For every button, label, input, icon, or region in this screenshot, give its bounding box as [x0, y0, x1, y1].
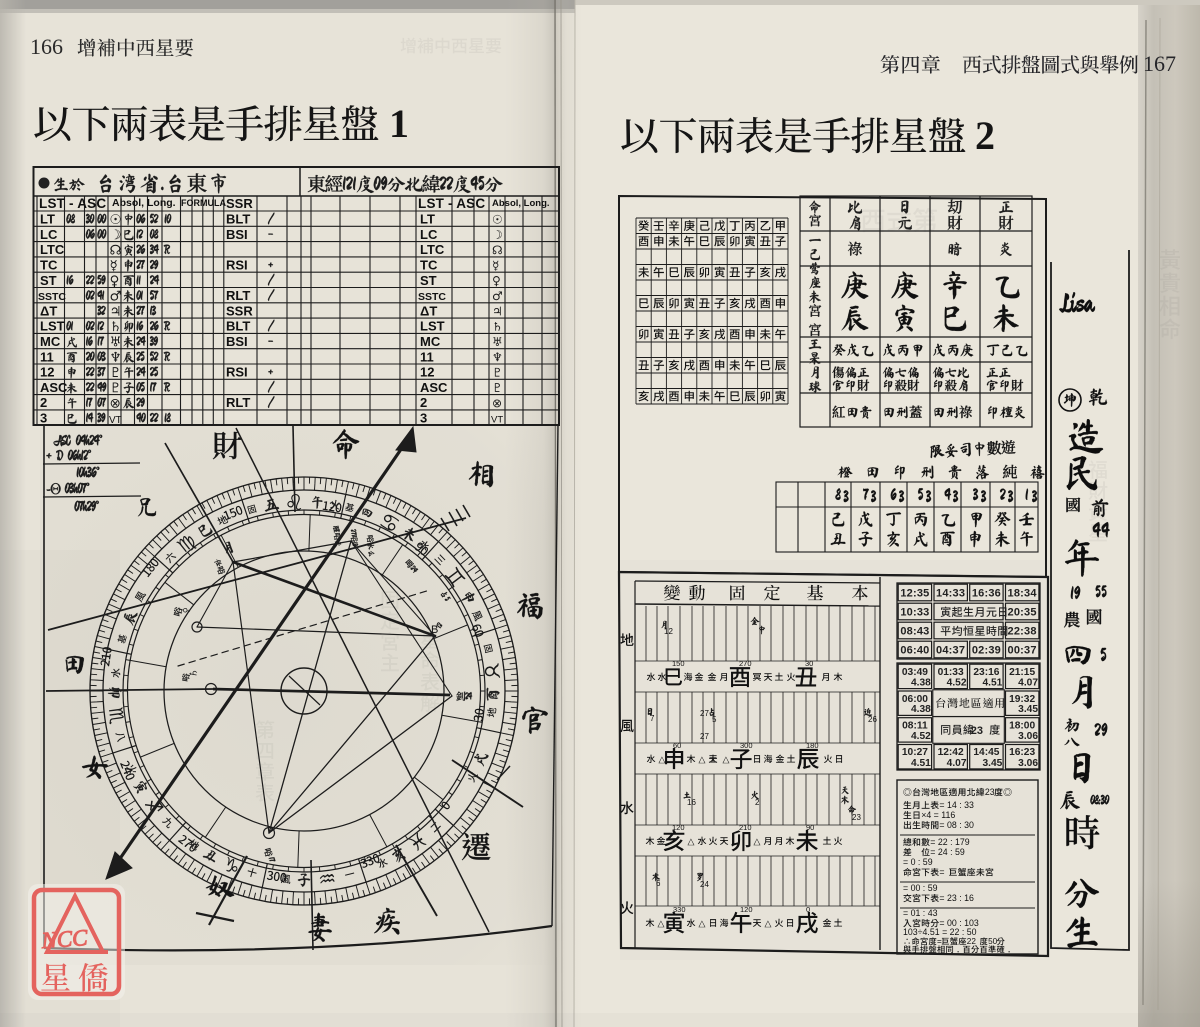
svg-text:LT: LT [420, 212, 435, 227]
svg-text:4.07: 4.07 [1018, 678, 1038, 689]
svg-text:10:33: 10:33 [900, 606, 929, 618]
svg-text:= 01 : 43: = 01 : 43 [903, 908, 938, 918]
svg-text:11: 11 [40, 349, 54, 364]
svg-text:BLT: BLT [226, 212, 250, 227]
svg-text:ST: ST [420, 273, 437, 288]
svg-text:= 0 : 59: = 0 : 59 [903, 857, 933, 867]
svg-text:LTC: LTC [420, 242, 445, 257]
svg-text:ST: ST [40, 273, 57, 288]
svg-text:MC: MC [40, 334, 61, 349]
svg-text:00:37: 00:37 [1008, 644, 1037, 656]
svg-text:RSI: RSI [226, 365, 248, 380]
svg-text:4.51: 4.51 [982, 678, 1002, 689]
svg-text:30: 30 [805, 659, 813, 668]
svg-text:08:43: 08:43 [900, 625, 929, 637]
svg-text:=: = [939, 867, 944, 877]
svg-text:20:35: 20:35 [1008, 606, 1037, 618]
svg-text:TC: TC [40, 258, 58, 273]
svg-text:7: 7 [650, 714, 655, 723]
svg-text:01:33: 01:33 [938, 667, 964, 678]
svg-text:BSI: BSI [226, 334, 248, 349]
svg-text:3.45: 3.45 [982, 758, 1002, 769]
svg-text:270: 270 [739, 659, 752, 668]
svg-text:22:38: 22:38 [1008, 625, 1037, 637]
svg-text:TC: TC [420, 258, 438, 273]
svg-text:= 14 : 33: = 14 : 33 [939, 800, 974, 810]
svg-text:16:23: 16:23 [1009, 747, 1035, 758]
svg-text:RLT: RLT [226, 395, 250, 410]
svg-text:300: 300 [740, 741, 753, 750]
svg-text:BSI: BSI [226, 227, 248, 242]
svg-text:21:15: 21:15 [1009, 667, 1035, 678]
svg-text:BLT: BLT [226, 319, 250, 334]
svg-text:2: 2 [755, 798, 760, 807]
svg-text:4.51: 4.51 [911, 758, 931, 769]
svg-text:22: 22 [967, 937, 977, 946]
svg-text:23: 23 [852, 813, 861, 822]
svg-text:18:00: 18:00 [1009, 721, 1035, 732]
svg-text:SSR: SSR [226, 303, 253, 318]
svg-text:2: 2 [420, 395, 427, 410]
svg-text:04:37: 04:37 [936, 644, 965, 656]
svg-text:90: 90 [806, 823, 814, 832]
svg-text:ASC: ASC [40, 380, 68, 395]
svg-text:3.45: 3.45 [1018, 704, 1038, 715]
svg-text:4.07: 4.07 [947, 758, 967, 769]
svg-text:VT: VT [491, 415, 503, 426]
svg-text:= 00 : 59: = 00 : 59 [903, 883, 938, 893]
svg-text:1: 1 [389, 101, 409, 146]
svg-text:4.38: 4.38 [911, 678, 931, 689]
svg-text:4.52: 4.52 [947, 678, 967, 689]
svg-text:LC: LC [40, 227, 58, 242]
svg-text:LST: LST [420, 319, 445, 334]
svg-text:Absol, Long.: Absol, Long. [112, 197, 176, 209]
svg-text:LST - ASC: LST - ASC [39, 196, 106, 211]
svg-text:18:34: 18:34 [1008, 587, 1038, 599]
svg-text:RLT: RLT [226, 288, 250, 303]
svg-text:06:40: 06:40 [900, 644, 929, 656]
svg-text:12:42: 12:42 [938, 747, 964, 758]
svg-text:210: 210 [739, 823, 752, 832]
svg-text:6: 6 [656, 879, 661, 888]
svg-text:SSTC: SSTC [38, 291, 66, 303]
svg-text:16:36: 16:36 [972, 587, 1001, 599]
svg-text:VT: VT [109, 415, 122, 426]
svg-text:27: 27 [700, 732, 709, 741]
svg-text:= 23 : 16: = 23 : 16 [939, 893, 974, 903]
svg-text:2: 2 [40, 395, 47, 410]
svg-text:2: 2 [975, 113, 995, 158]
svg-text:12: 12 [420, 365, 434, 380]
svg-text:120: 120 [672, 823, 685, 832]
svg-text:23:16: 23:16 [973, 667, 999, 678]
svg-text:3.06: 3.06 [1018, 731, 1038, 742]
svg-text:3.06: 3.06 [1018, 758, 1038, 769]
svg-text:26: 26 [868, 715, 877, 724]
svg-text:180: 180 [806, 741, 819, 750]
svg-text:12: 12 [664, 627, 673, 636]
svg-text:4.52: 4.52 [911, 731, 931, 742]
svg-text:×4 = 116: ×4 = 116 [921, 810, 955, 820]
svg-text:3: 3 [40, 411, 47, 426]
svg-text:ΔT: ΔT [40, 303, 57, 318]
svg-text:330: 330 [673, 905, 686, 914]
svg-text:14:45: 14:45 [973, 747, 999, 758]
svg-text:03:49: 03:49 [902, 667, 928, 678]
svg-text:14:33: 14:33 [936, 587, 965, 599]
svg-text:12: 12 [40, 365, 54, 380]
svg-text:60: 60 [673, 741, 681, 750]
svg-text:167: 167 [1143, 51, 1176, 76]
svg-text:NCC: NCC [40, 925, 89, 953]
svg-text:103÷4.51 = 22 : 50: 103÷4.51 = 22 : 50 [903, 927, 977, 937]
svg-text:4.38: 4.38 [911, 704, 931, 715]
svg-text:06:00: 06:00 [902, 694, 928, 705]
svg-text:Absol, Long.: Absol, Long. [492, 198, 550, 209]
svg-text:SSTC: SSTC [418, 291, 446, 303]
svg-text:11: 11 [420, 349, 434, 364]
svg-text:= 22 : 179: = 22 : 179 [930, 837, 969, 847]
svg-text:= 08 : 30: = 08 : 30 [939, 820, 974, 830]
svg-text:MC: MC [420, 334, 441, 349]
svg-text:50: 50 [988, 937, 998, 946]
svg-text:12:35: 12:35 [900, 587, 929, 599]
svg-text:23: 23 [971, 725, 983, 737]
svg-text:LST - ASC: LST - ASC [418, 196, 485, 211]
svg-text:120: 120 [740, 905, 753, 914]
svg-text:24: 24 [700, 880, 709, 889]
svg-text:19:32: 19:32 [1009, 694, 1035, 705]
svg-text:27: 27 [700, 709, 709, 718]
svg-text:LST: LST [40, 319, 65, 334]
svg-text:5: 5 [712, 715, 717, 724]
svg-text:3: 3 [420, 411, 427, 426]
svg-text:166: 166 [30, 34, 63, 59]
svg-text:150: 150 [672, 659, 685, 668]
svg-text:23: 23 [985, 787, 995, 797]
svg-text:0: 0 [806, 905, 810, 914]
svg-text:10:27: 10:27 [902, 747, 928, 758]
svg-text:SSR: SSR [226, 196, 253, 211]
svg-text:RSI: RSI [226, 258, 248, 273]
svg-text:LT: LT [40, 212, 55, 227]
svg-text:ΔT: ΔT [420, 303, 437, 318]
svg-text:=: = [937, 937, 942, 946]
svg-text:= 24 : 59: = 24 : 59 [930, 847, 965, 857]
svg-text:ASC: ASC [420, 380, 448, 395]
svg-text:LTC: LTC [40, 242, 65, 257]
svg-text:FORMULA: FORMULA [181, 198, 226, 208]
svg-text:LC: LC [420, 227, 438, 242]
svg-text:08:11: 08:11 [902, 721, 928, 732]
svg-text:02:39: 02:39 [972, 644, 1001, 656]
svg-text:16: 16 [687, 798, 696, 807]
